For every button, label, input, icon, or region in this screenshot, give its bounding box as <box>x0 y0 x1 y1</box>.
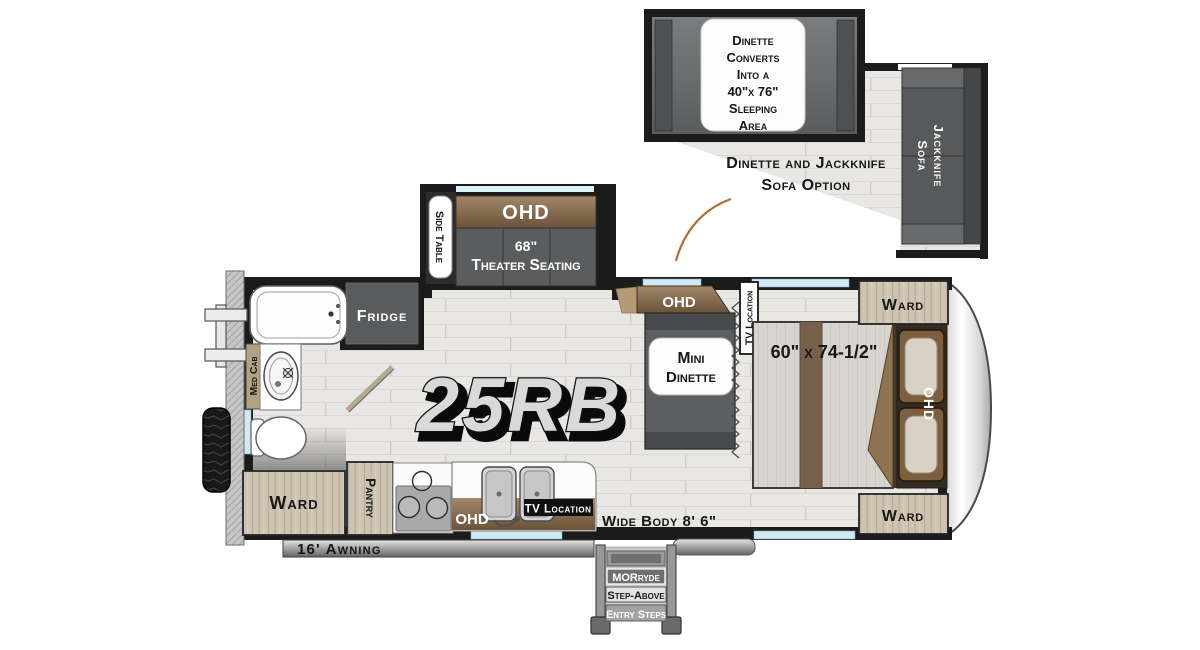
dinette-backrest <box>645 432 735 449</box>
sofa-armrest-bottom <box>902 224 964 244</box>
dinette-note-line: Into a <box>737 67 770 82</box>
tv-location-label: TV Location <box>525 504 592 516</box>
pillow <box>905 416 937 473</box>
main-floorplan: 25RB 25RB Side Table <box>203 184 991 634</box>
model-logo: 25RB 25RB <box>415 363 629 455</box>
entry-steps: MORryde Step-Above Entry Steps <box>591 545 681 634</box>
pantry-label: Pantry <box>363 478 378 518</box>
awning-label: 16' Awning <box>297 541 382 558</box>
toilet-icon <box>256 417 306 459</box>
wardrobe-label: Ward <box>269 493 318 513</box>
dinette-seat-right <box>837 20 854 131</box>
sofa-label-line1: Jackknife <box>931 125 946 188</box>
burner <box>427 498 448 519</box>
step-tread-inner <box>611 554 661 563</box>
mini-dinette-label-line1: Mini <box>678 350 705 367</box>
burner <box>399 497 420 518</box>
wardrobe-label: Ward <box>882 508 924 525</box>
tub-faucet <box>328 311 333 316</box>
dinette-note-line: Sleeping <box>729 101 777 116</box>
jackknife-sofa: Jackknife Sofa <box>902 68 981 244</box>
bed-side-rail <box>893 322 897 488</box>
option-caption-line2: Sofa Option <box>761 177 850 194</box>
ohd-label: OHD <box>662 294 696 311</box>
med-cab-label: Med Cab <box>248 356 260 395</box>
spare-tire-icon <box>203 408 230 492</box>
option-caption-line1: Dinette and Jackknife <box>726 155 886 172</box>
entry-door-bar <box>673 539 755 555</box>
floorplan-page: Dinette Converts Into a 40"x 76" Sleepin… <box>0 0 1200 650</box>
kitchen-faucet-base <box>514 516 520 522</box>
side-table-label: Side Table <box>433 211 445 264</box>
fridge: Fridge <box>340 277 424 350</box>
theater-slide: Side Table OHD 68" Theater Seating <box>420 184 616 290</box>
step-rail <box>667 545 676 624</box>
sink-drain <box>497 492 502 497</box>
option-connector-arc <box>676 199 731 261</box>
wide-body-label: Wide Body 8' 6" <box>602 513 717 530</box>
dinette-note-line: 40"x 76" <box>728 84 779 99</box>
sofa-backrest <box>964 68 981 244</box>
kitchen-galley: Ward Pantry OHD TV Location <box>243 462 596 535</box>
steps-line3-label: Entry Steps <box>606 609 667 621</box>
ladder-rung <box>205 309 247 321</box>
ohd-label: OHD <box>455 511 489 528</box>
ohd-label: OHD <box>921 387 937 421</box>
tub-knob <box>336 304 340 308</box>
theater-seating-label: Theater Seating <box>471 257 580 274</box>
dinette-seat-left <box>655 20 672 131</box>
fridge-label: Fridge <box>357 308 408 325</box>
window <box>456 186 594 192</box>
tub-knob <box>336 320 340 324</box>
theater-size-label: 68" <box>515 238 537 254</box>
dinette-note-line: Dinette <box>732 33 773 48</box>
ladder-rung <box>205 349 247 361</box>
dinette-backrest <box>645 313 735 330</box>
sofa-label-line2: Sofa <box>915 140 930 171</box>
bathtub-basin <box>257 292 340 338</box>
wardrobe-label: Ward <box>882 297 924 314</box>
option-wall-bottom <box>896 250 988 258</box>
dinette-note-line: Converts <box>727 50 780 65</box>
sofa-armrest-top <box>902 68 964 88</box>
steps-line2-label: Step-Above <box>607 590 665 602</box>
mini-dinette-label-line2: Dinette <box>666 369 716 386</box>
model-logo-text: 25RB <box>415 363 623 448</box>
window <box>754 531 855 539</box>
step-rail <box>596 545 605 624</box>
sink-drain <box>535 492 540 497</box>
steps-brand-label: MORryde <box>612 572 660 584</box>
dinette-note-line: Area <box>739 118 768 133</box>
burner <box>413 472 432 491</box>
floorplan-canvas: Dinette Converts Into a 40"x 76" Sleepin… <box>0 0 1200 650</box>
window <box>471 531 562 539</box>
option-dinette-slide: Dinette Converts Into a 40"x 76" Sleepin… <box>644 9 865 142</box>
ohd-label: OHD <box>502 202 549 224</box>
window <box>752 279 849 287</box>
sink-drain <box>275 381 281 387</box>
bed-size-label: 60" x 74-1/2" <box>771 342 878 362</box>
option-inset: Dinette Converts Into a 40"x 76" Sleepin… <box>644 9 988 261</box>
